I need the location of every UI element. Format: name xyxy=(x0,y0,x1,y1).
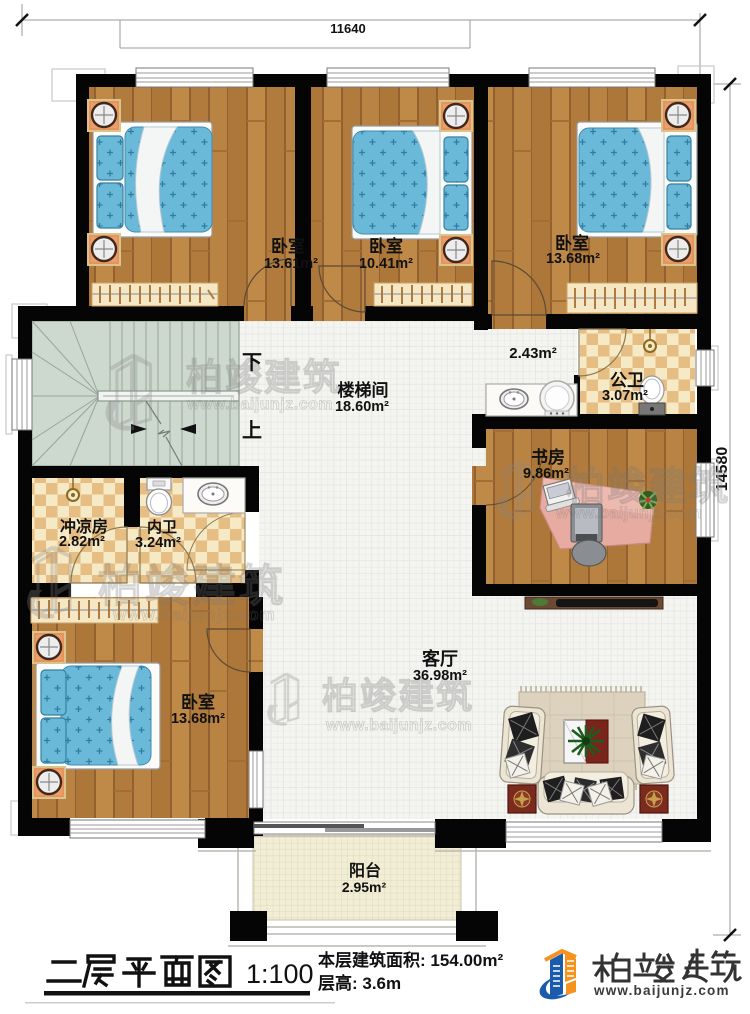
svg-text:3.07m²: 3.07m² xyxy=(602,388,648,404)
svg-text:9.86m²: 9.86m² xyxy=(523,466,569,482)
svg-text:内卫: 内卫 xyxy=(147,518,177,536)
svg-text:下: 下 xyxy=(242,352,262,374)
svg-text:2.43m²: 2.43m² xyxy=(509,345,557,362)
svg-text:柏竣建筑: 柏竣建筑 xyxy=(186,356,342,398)
svg-text:36.98m²: 36.98m² xyxy=(413,668,467,684)
svg-text:本层建筑面积: 154.00m²: 本层建筑面积: 154.00m² xyxy=(318,950,503,970)
svg-text:客厅: 客厅 xyxy=(422,648,458,669)
svg-text:柏竣建筑: 柏竣建筑 xyxy=(566,466,730,509)
svg-text:书房: 书房 xyxy=(531,447,565,467)
svg-text:1:100: 1:100 xyxy=(246,959,314,989)
svg-text:卧室: 卧室 xyxy=(181,692,215,712)
svg-text:13.68m²: 13.68m² xyxy=(171,711,225,727)
svg-text:卧室: 卧室 xyxy=(369,236,403,256)
svg-text:卧室: 卧室 xyxy=(271,236,305,256)
svg-text:www.baijunjz.com: www.baijunjz.com xyxy=(555,505,702,522)
svg-text:楼梯间: 楼梯间 xyxy=(338,380,389,400)
svg-text:www.baijunjz.com: www.baijunjz.com xyxy=(112,605,276,624)
svg-text:2.95m²: 2.95m² xyxy=(342,879,387,895)
svg-text:18.60m²: 18.60m² xyxy=(335,399,389,415)
svg-text:10.41m²: 10.41m² xyxy=(359,256,413,272)
svg-text:www.baijunjz.com: www.baijunjz.com xyxy=(186,396,333,413)
svg-text:13.68m²: 13.68m² xyxy=(546,251,600,267)
svg-text:阳台: 阳台 xyxy=(349,861,381,880)
svg-text:层高: 3.6m: 层高: 3.6m xyxy=(318,973,401,993)
svg-text:www.baijunjz.com: www.baijunjz.com xyxy=(593,983,730,998)
svg-text:3.24m²: 3.24m² xyxy=(135,535,181,551)
svg-text:柏竣建筑: 柏竣建筑 xyxy=(98,562,286,611)
svg-text:www.baijunjz.com: www.baijunjz.com xyxy=(325,717,472,734)
svg-text:卧室: 卧室 xyxy=(555,233,589,253)
svg-text:11640: 11640 xyxy=(330,21,365,36)
svg-text:2.82m²: 2.82m² xyxy=(59,534,105,550)
svg-text:13.61m²: 13.61m² xyxy=(264,256,318,272)
svg-text:上: 上 xyxy=(242,419,262,442)
